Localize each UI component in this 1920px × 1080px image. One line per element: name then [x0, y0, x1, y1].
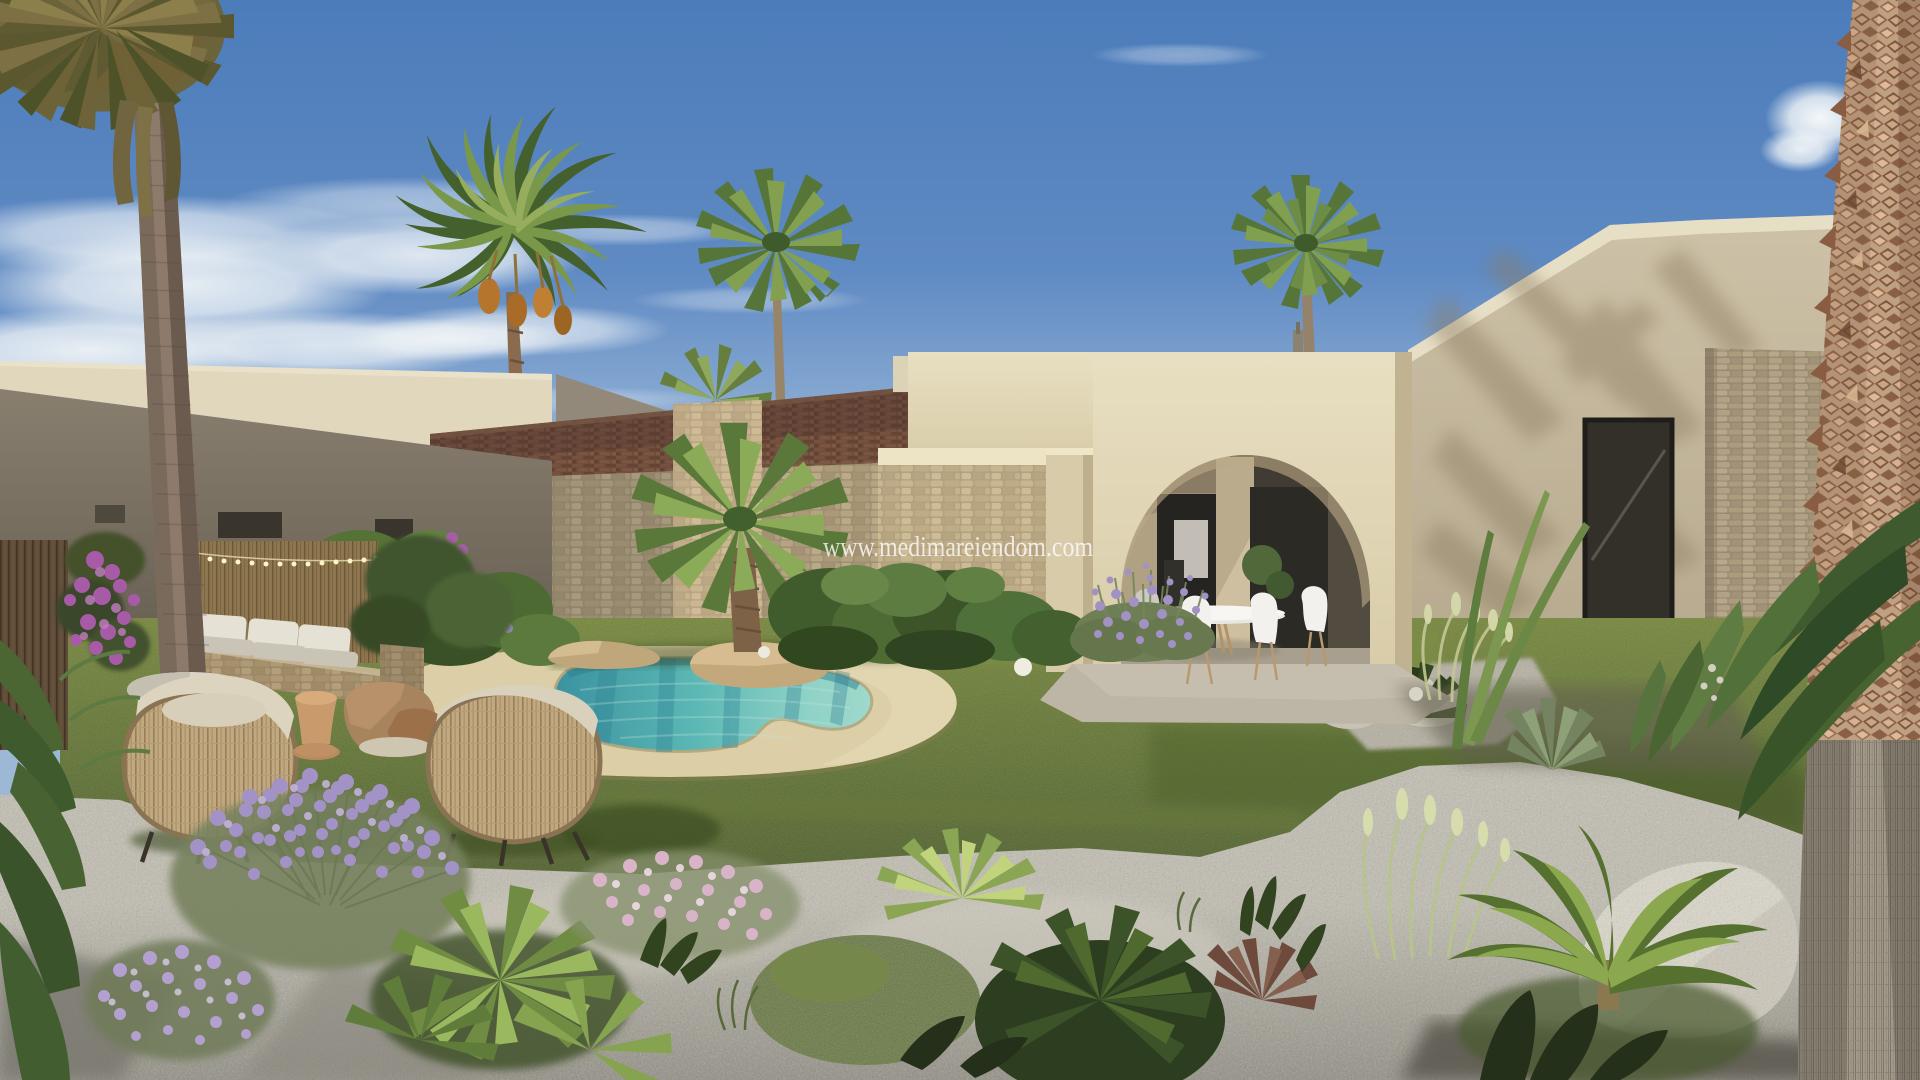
svg-text:www.medimareiendom.com: www.medimareiendom.com	[823, 532, 1093, 563]
